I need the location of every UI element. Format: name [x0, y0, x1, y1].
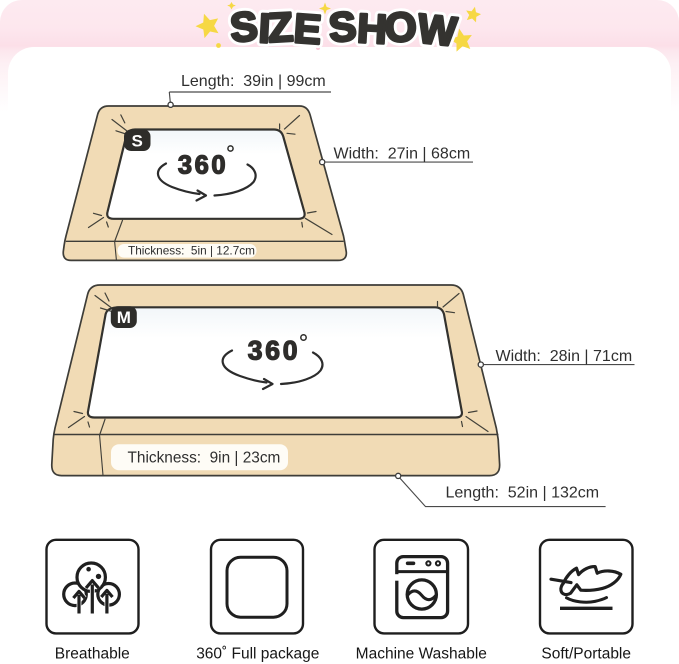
svg-text:360: 360 — [178, 152, 228, 180]
svg-text:Width: 28in | 71cm: Width: 28in | 71cm — [496, 348, 633, 365]
svg-text:S: S — [132, 132, 143, 151]
svg-text:360˚ Full package: 360˚ Full package — [196, 645, 319, 662]
svg-text:Breathable: Breathable — [55, 645, 130, 662]
svg-text:Width: 27in | 68cm: Width: 27in | 68cm — [334, 145, 471, 162]
svg-text:Length: 52in | 132cm: Length: 52in | 132cm — [446, 485, 600, 502]
svg-text:360: 360 — [248, 336, 301, 366]
svg-text:SIZE SHOW: SIZE SHOW — [228, 3, 459, 55]
svg-text:Thickness: 5in | 12.7cm: Thickness: 5in | 12.7cm — [128, 244, 255, 258]
svg-text:Thickness: 9in | 23cm: Thickness: 9in | 23cm — [128, 450, 281, 467]
svg-text:Soft/Portable: Soft/Portable — [541, 645, 631, 662]
svg-text:M: M — [117, 308, 131, 327]
svg-text:Length: 39in | 99cm: Length: 39in | 99cm — [181, 73, 326, 90]
svg-text:Machine Washable: Machine Washable — [356, 645, 487, 662]
